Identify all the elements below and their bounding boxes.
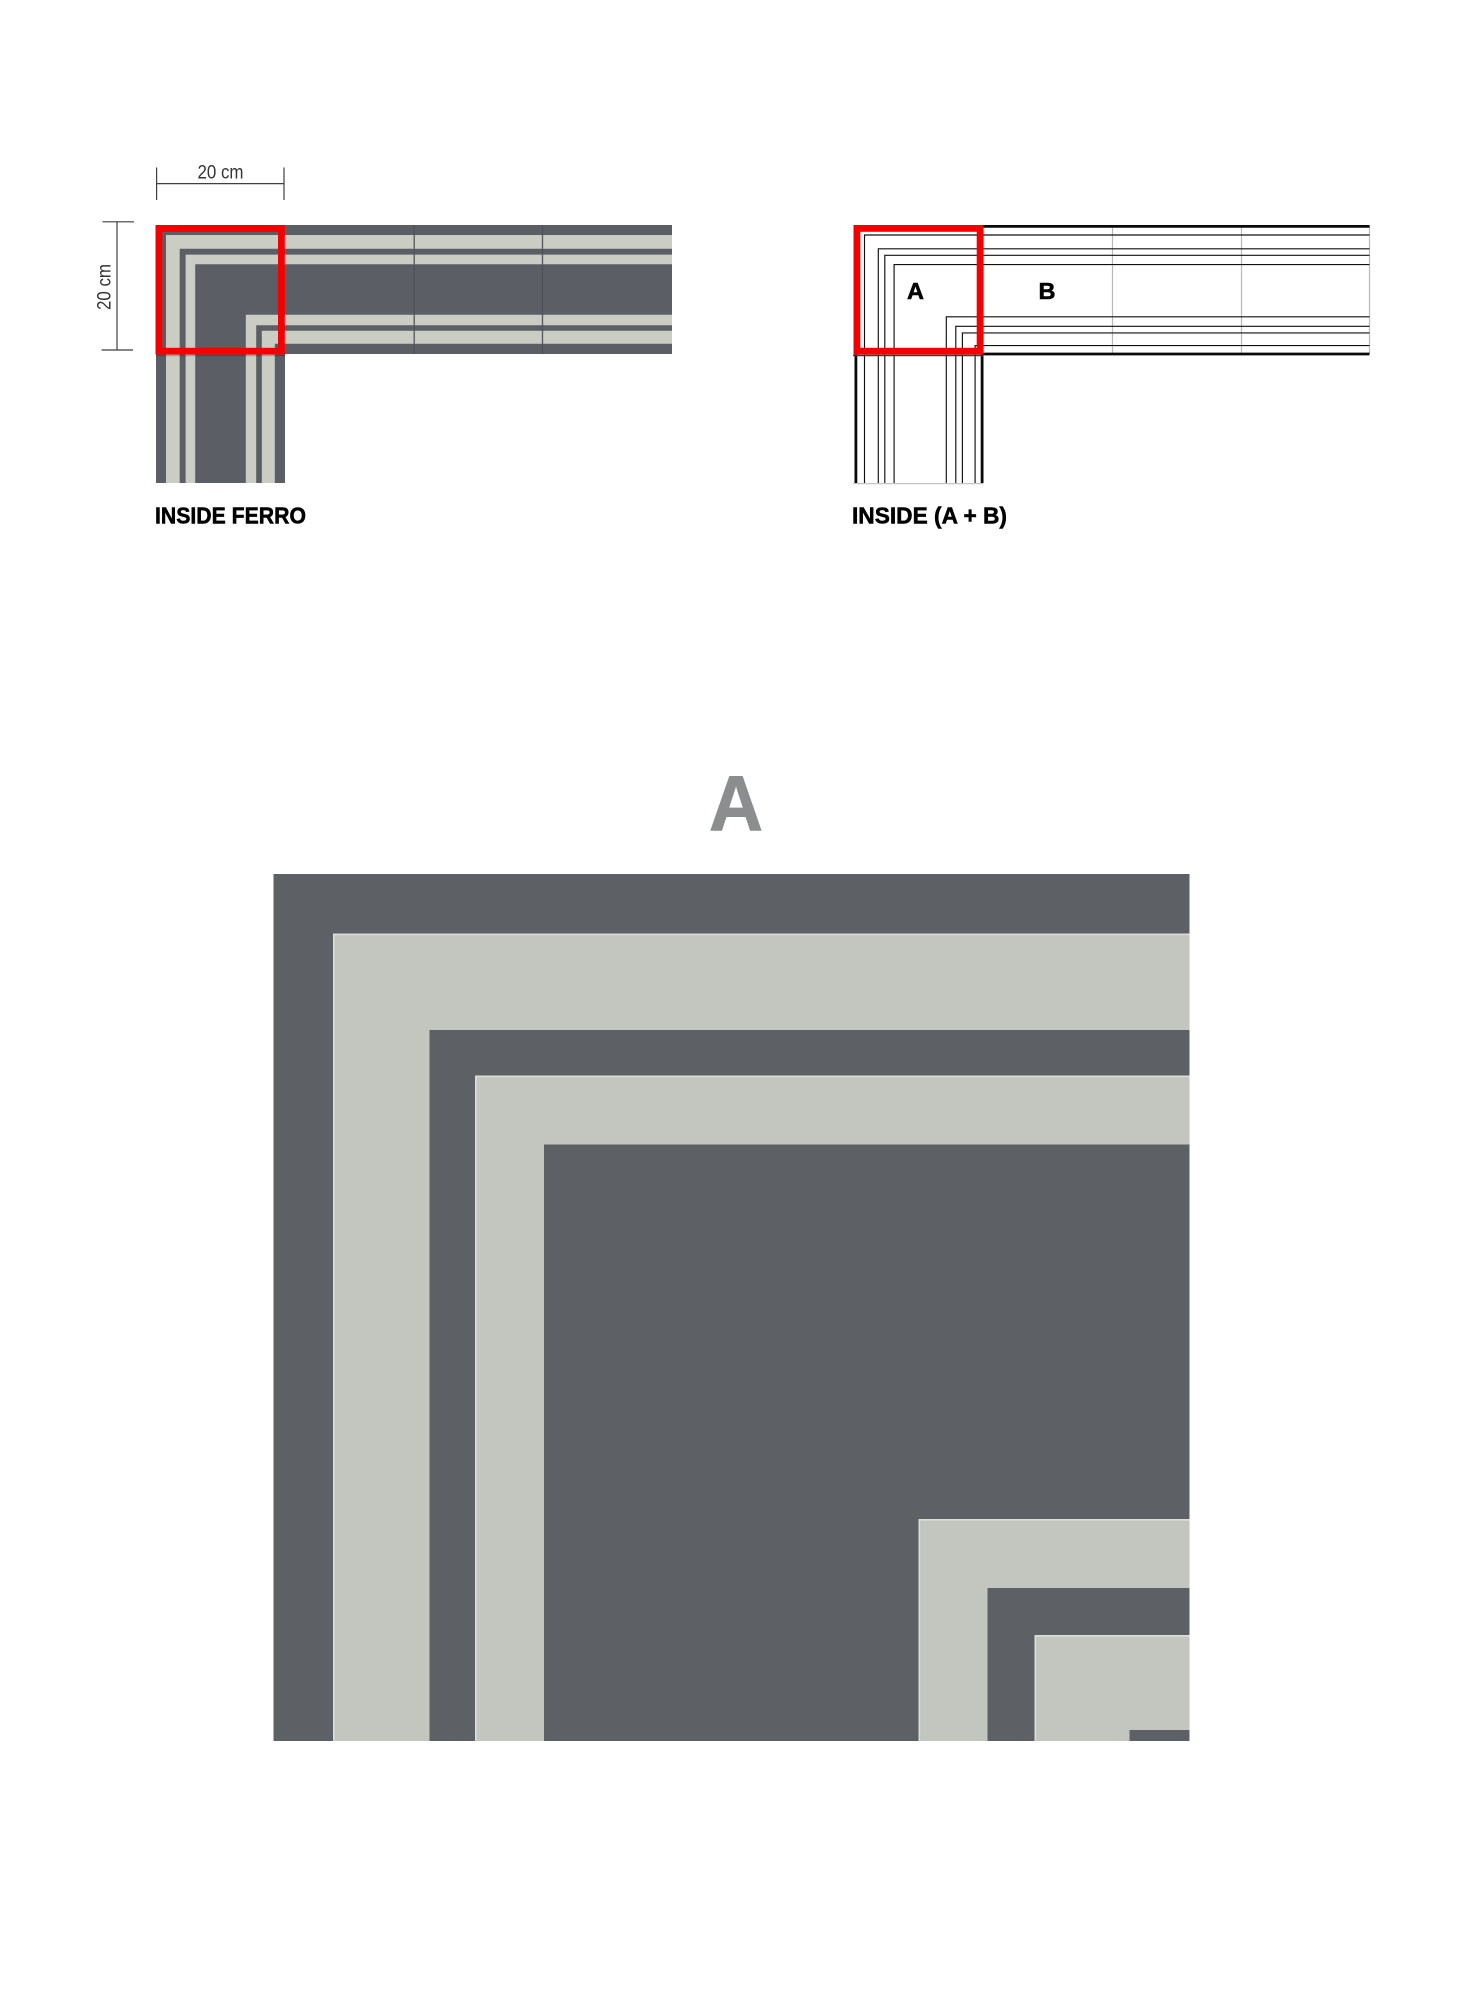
svg-text:A: A xyxy=(907,278,924,304)
svg-text:20 cm: 20 cm xyxy=(94,264,116,310)
svg-text:INSIDE (A + B): INSIDE (A + B) xyxy=(852,503,1007,529)
svg-text:A: A xyxy=(709,759,763,847)
svg-text:INSIDE FERRO: INSIDE FERRO xyxy=(155,503,306,529)
svg-text:20 cm: 20 cm xyxy=(198,162,244,184)
svg-text:B: B xyxy=(1039,278,1056,304)
